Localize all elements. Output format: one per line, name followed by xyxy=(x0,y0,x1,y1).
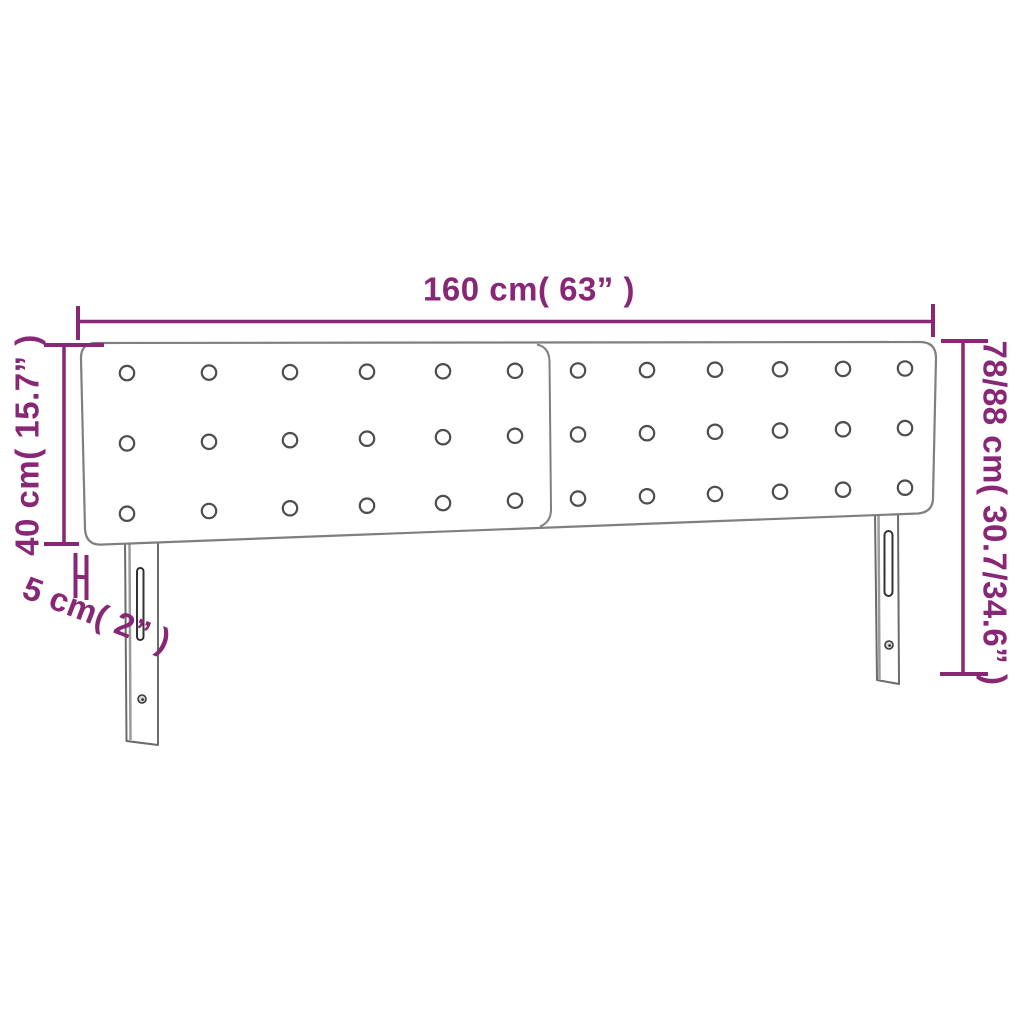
tufting-button xyxy=(640,489,654,503)
width-dimension-line xyxy=(78,304,933,340)
tufting-button xyxy=(120,507,134,521)
tufting-button xyxy=(708,363,722,377)
tufting-button xyxy=(202,365,216,379)
tufting-button xyxy=(436,496,450,510)
tufting-button xyxy=(640,426,654,440)
tufting-button xyxy=(360,499,374,513)
tufting-button xyxy=(773,423,787,437)
tufting-button xyxy=(773,362,787,376)
headboard-illustration xyxy=(0,0,1024,1024)
tufting-button xyxy=(773,485,787,499)
tufting-button xyxy=(571,363,585,377)
tufting-button xyxy=(898,481,912,495)
tufting-button xyxy=(508,494,522,508)
right-leg xyxy=(875,512,899,684)
tufting-button xyxy=(508,429,522,443)
tufting-button xyxy=(571,491,585,505)
tufting-button xyxy=(283,433,297,447)
tufting-button xyxy=(120,436,134,450)
right-leg-slot xyxy=(885,531,893,596)
tufting-button xyxy=(283,501,297,515)
tufting-button xyxy=(202,504,216,518)
tufting-button xyxy=(836,362,850,376)
tufting-button xyxy=(836,483,850,497)
total-height-label: 78/88 cm( 30.7/34.6” ) xyxy=(979,341,1012,686)
tufting-button xyxy=(508,364,522,378)
tufting-button xyxy=(202,435,216,449)
dimension-diagram: 160 cm( 63” ) 40 cm( 15.7” ) 78/88 cm( 3… xyxy=(0,0,1024,1024)
tufting-button xyxy=(283,365,297,379)
width-label: 160 cm( 63” ) xyxy=(423,273,635,306)
tufting-button xyxy=(571,427,585,441)
tufting-button xyxy=(836,422,850,436)
tufting-button xyxy=(708,487,722,501)
tufting-button xyxy=(360,432,374,446)
tufting-button xyxy=(360,365,374,379)
tufting-button xyxy=(640,363,654,377)
tufting-button xyxy=(120,366,134,380)
tufting-button xyxy=(708,425,722,439)
tufting-button xyxy=(898,361,912,375)
tufting-button xyxy=(436,364,450,378)
panel-height-label: 40 cm( 15.7” ) xyxy=(11,334,44,556)
tufting-button xyxy=(898,421,912,435)
tufting-button xyxy=(436,430,450,444)
